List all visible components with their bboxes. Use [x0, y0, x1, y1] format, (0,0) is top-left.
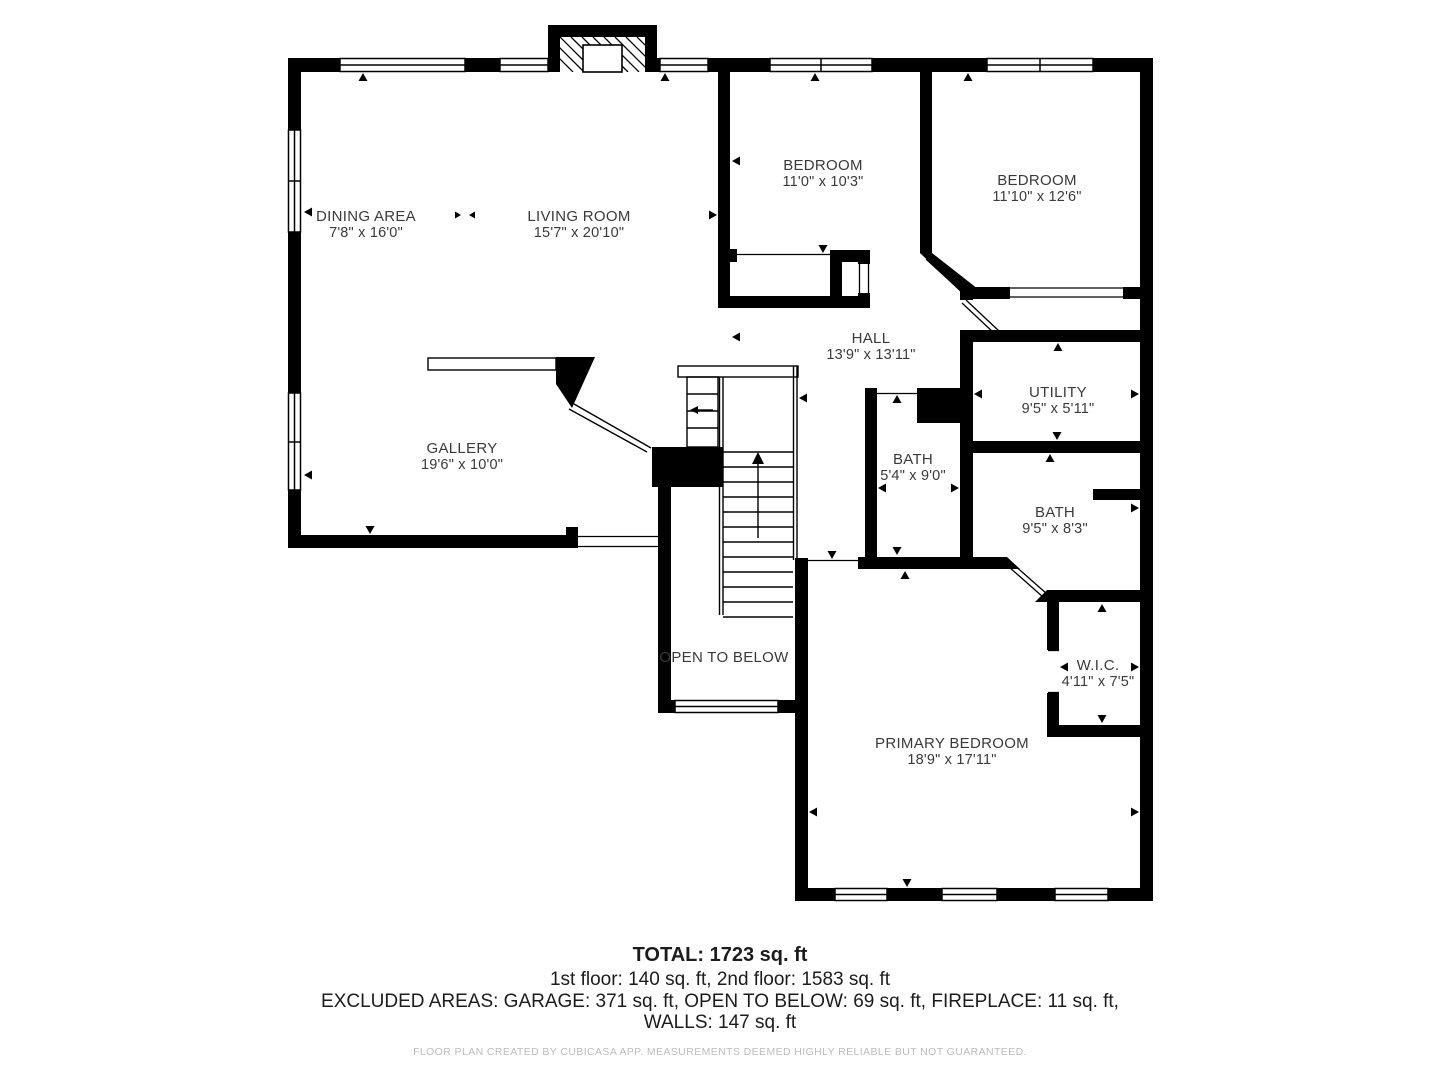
- room-label-dining-area: DINING AREA 7'8" x 16'0": [316, 209, 416, 241]
- window: [1055, 889, 1108, 901]
- room-dims: 18'9" x 17'11": [875, 752, 1029, 768]
- firebox: [583, 45, 622, 72]
- room-dims: 4'11" x 7'5": [1062, 674, 1135, 690]
- floor-plan-drawing: [0, 0, 1440, 1080]
- window: [500, 59, 548, 72]
- excluded-areas: EXCLUDED AREAS: GARAGE: 371 sq. ft, OPEN…: [0, 991, 1440, 1013]
- room-dims: 9'5" x 5'11": [1022, 401, 1095, 417]
- total-area: TOTAL: 1723 sq. ft: [0, 944, 1440, 967]
- room-label-gallery: GALLERY 19'6" x 10'0": [421, 441, 503, 473]
- room-name: PRIMARY BEDROOM: [875, 736, 1029, 752]
- room-label-hall: HALL 13'9" x 13'11": [826, 331, 915, 363]
- room-name: BEDROOM: [782, 158, 863, 174]
- room-dims: 15'7" x 20'10": [527, 225, 630, 241]
- room-label-utility: UTILITY 9'5" x 5'11": [1022, 385, 1095, 417]
- gallery-half-wall: [428, 358, 556, 370]
- floor-areas: 1st floor: 140 sq. ft, 2nd floor: 1583 s…: [0, 969, 1440, 991]
- window: [835, 889, 887, 901]
- room-dims: 5'4" x 9'0": [880, 468, 946, 484]
- room-name: BATH: [880, 452, 946, 468]
- stair-arrow-left: [690, 406, 698, 414]
- stair-arrow-up: [752, 452, 764, 464]
- room-name: HALL: [826, 331, 915, 347]
- floor-plan: DINING AREA 7'8" x 16'0" LIVING ROOM 15'…: [0, 0, 1440, 1080]
- area-summary: TOTAL: 1723 sq. ft 1st floor: 140 sq. ft…: [0, 944, 1440, 1034]
- disclaimer: FLOOR PLAN CREATED BY CUBICASA APP. MEAS…: [0, 1046, 1440, 1058]
- room-label-bath-1: BATH 5'4" x 9'0": [880, 452, 946, 484]
- room-dims: 9'5" x 8'3": [1022, 521, 1088, 537]
- room-label-wic: W.I.C. 4'11" x 7'5": [1062, 658, 1135, 690]
- room-dims: 11'0" x 10'3": [782, 174, 863, 190]
- room-label-bedroom-2: BEDROOM 11'10" x 12'6": [992, 173, 1081, 205]
- window: [289, 130, 301, 232]
- room-name: W.I.C.: [1062, 658, 1135, 674]
- room-name: GALLERY: [421, 441, 503, 457]
- window: [942, 889, 997, 901]
- room-name: BATH: [1022, 505, 1088, 521]
- room-dims: 19'6" x 10'0": [421, 457, 503, 473]
- room-label-living-room: LIVING ROOM 15'7" x 20'10": [527, 209, 630, 241]
- fireplace: [538, 25, 672, 72]
- room-name: BEDROOM: [992, 173, 1081, 189]
- room-name: OPEN TO BELOW: [659, 650, 788, 666]
- walls-area: WALLS: 147 sq. ft: [0, 1012, 1440, 1034]
- room-label-bedroom-1: BEDROOM 11'0" x 10'3": [782, 158, 863, 190]
- room-label-bath-2: BATH 9'5" x 8'3": [1022, 505, 1088, 537]
- staircase: [428, 358, 798, 617]
- room-dims: 7'8" x 16'0": [316, 225, 416, 241]
- window: [289, 393, 301, 490]
- window: [987, 59, 1093, 72]
- window: [660, 59, 708, 72]
- window: [770, 59, 872, 72]
- window: [340, 59, 465, 72]
- room-dims: 13'9" x 13'11": [826, 347, 915, 363]
- room-name: DINING AREA: [316, 209, 416, 225]
- room-name: LIVING ROOM: [527, 209, 630, 225]
- room-name: UTILITY: [1022, 385, 1095, 401]
- room-label-open-to-below: OPEN TO BELOW: [659, 650, 788, 666]
- room-dims: 11'10" x 12'6": [992, 189, 1081, 205]
- room-label-primary-bedroom: PRIMARY BEDROOM 18'9" x 17'11": [875, 736, 1029, 768]
- window: [675, 701, 778, 713]
